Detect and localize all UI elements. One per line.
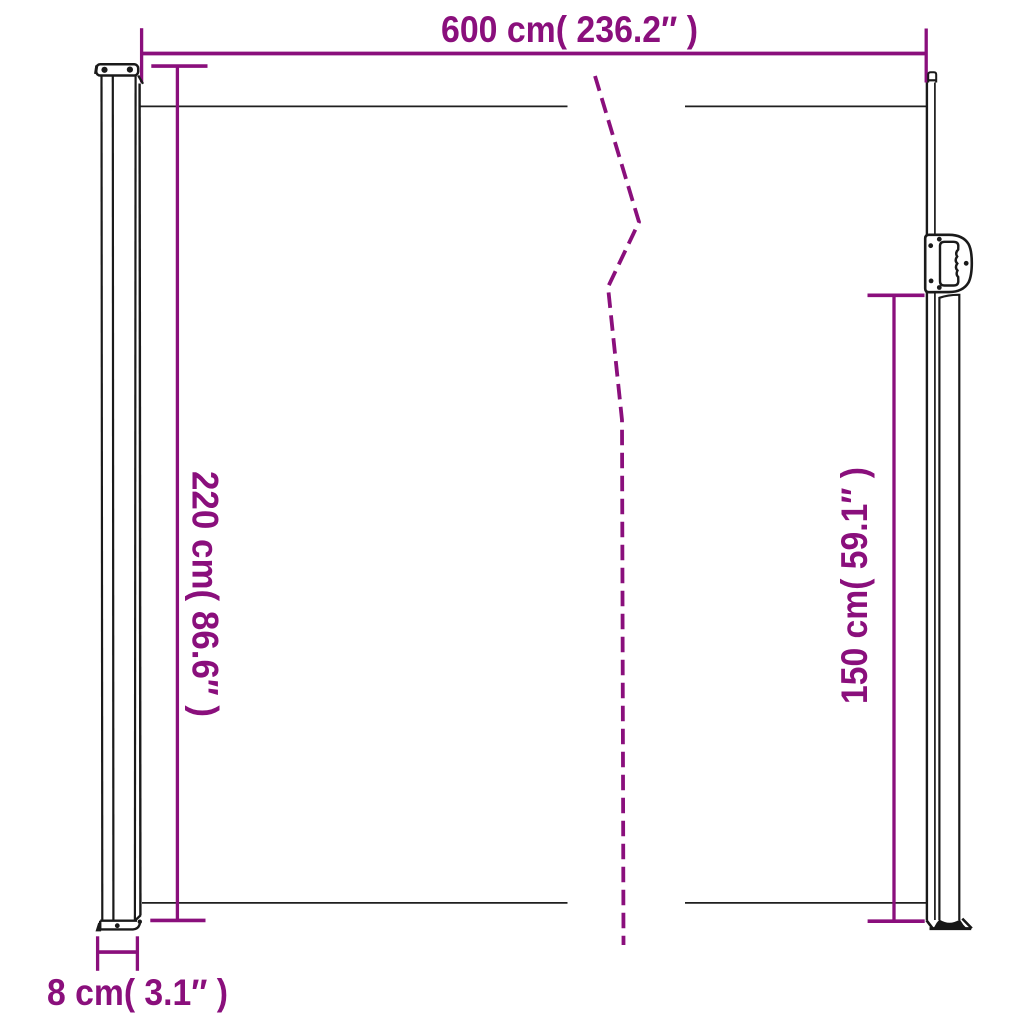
- svg-text:600 cm( 236.2″ ): 600 cm( 236.2″ ): [441, 9, 698, 50]
- svg-text:150 cm( 59.1″ ): 150 cm( 59.1″ ): [834, 467, 875, 704]
- svg-text:8 cm( 3.1″ ): 8 cm( 3.1″ ): [47, 972, 228, 1013]
- svg-text:220 cm( 86.6″ ): 220 cm( 86.6″ ): [185, 471, 226, 717]
